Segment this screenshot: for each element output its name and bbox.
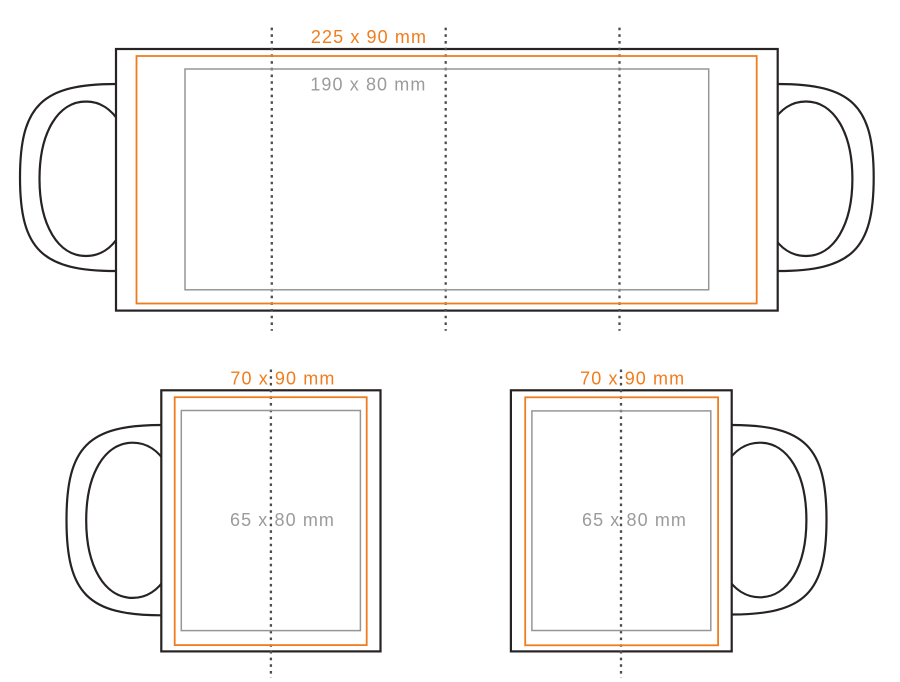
svg-text:190 x 80 mm: 190 x 80 mm — [310, 75, 426, 95]
svg-text:70 x 90 mm: 70 x 90 mm — [230, 369, 335, 389]
svg-text:70 x 90 mm: 70 x 90 mm — [580, 369, 685, 389]
svg-text:225 x 90 mm: 225 x 90 mm — [311, 27, 427, 47]
svg-text:65 x 80 mm: 65 x 80 mm — [582, 510, 687, 530]
svg-text:65 x 80 mm: 65 x 80 mm — [230, 510, 335, 530]
